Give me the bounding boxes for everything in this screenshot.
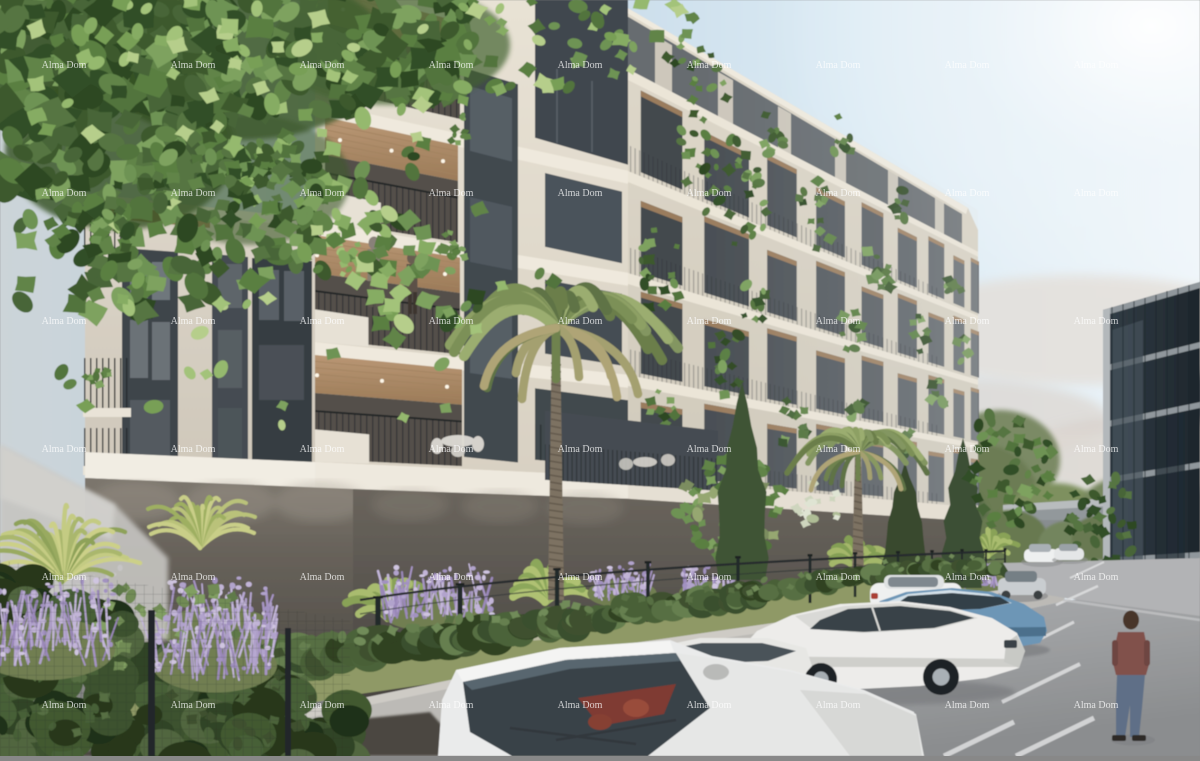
svg-text:Alma Dom: Alma Dom (945, 444, 990, 455)
svg-text:Alma Dom: Alma Dom (1074, 188, 1119, 199)
svg-text:Alma Dom: Alma Dom (558, 316, 603, 327)
svg-text:Alma Dom: Alma Dom (945, 572, 990, 583)
svg-text:Alma Dom: Alma Dom (816, 444, 861, 455)
svg-text:Alma Dom: Alma Dom (816, 700, 861, 711)
svg-text:Alma Dom: Alma Dom (300, 188, 345, 199)
svg-text:Alma Dom: Alma Dom (300, 60, 345, 71)
svg-text:Alma Dom: Alma Dom (171, 700, 216, 711)
svg-text:Alma Dom: Alma Dom (171, 316, 216, 327)
svg-text:Alma Dom: Alma Dom (42, 572, 87, 583)
svg-text:Alma Dom: Alma Dom (687, 572, 732, 583)
svg-text:Alma Dom: Alma Dom (429, 444, 474, 455)
svg-text:Alma Dom: Alma Dom (945, 316, 990, 327)
svg-text:Alma Dom: Alma Dom (1074, 444, 1119, 455)
svg-text:Alma Dom: Alma Dom (171, 444, 216, 455)
svg-text:Alma Dom: Alma Dom (429, 700, 474, 711)
svg-text:Alma Dom: Alma Dom (687, 188, 732, 199)
svg-text:Alma Dom: Alma Dom (42, 60, 87, 71)
svg-text:Alma Dom: Alma Dom (300, 700, 345, 711)
svg-text:Alma Dom: Alma Dom (1074, 60, 1119, 71)
svg-text:Alma Dom: Alma Dom (42, 444, 87, 455)
svg-text:Alma Dom: Alma Dom (558, 572, 603, 583)
svg-text:Alma Dom: Alma Dom (687, 316, 732, 327)
svg-text:Alma Dom: Alma Dom (816, 316, 861, 327)
svg-text:Alma Dom: Alma Dom (816, 188, 861, 199)
svg-text:Alma Dom: Alma Dom (687, 700, 732, 711)
svg-text:Alma Dom: Alma Dom (945, 700, 990, 711)
svg-text:Alma Dom: Alma Dom (558, 444, 603, 455)
svg-text:Alma Dom: Alma Dom (300, 444, 345, 455)
svg-text:Alma Dom: Alma Dom (687, 444, 732, 455)
svg-text:Alma Dom: Alma Dom (558, 188, 603, 199)
svg-text:Alma Dom: Alma Dom (816, 572, 861, 583)
svg-text:Alma Dom: Alma Dom (1074, 572, 1119, 583)
svg-text:Alma Dom: Alma Dom (300, 316, 345, 327)
svg-text:Alma Dom: Alma Dom (429, 316, 474, 327)
svg-text:Alma Dom: Alma Dom (429, 572, 474, 583)
svg-text:Alma Dom: Alma Dom (1074, 316, 1119, 327)
svg-text:Alma Dom: Alma Dom (558, 60, 603, 71)
svg-text:Alma Dom: Alma Dom (171, 188, 216, 199)
svg-text:Alma Dom: Alma Dom (816, 60, 861, 71)
svg-text:Alma Dom: Alma Dom (171, 572, 216, 583)
svg-text:Alma Dom: Alma Dom (429, 60, 474, 71)
svg-text:Alma Dom: Alma Dom (42, 700, 87, 711)
svg-text:Alma Dom: Alma Dom (558, 700, 603, 711)
svg-text:Alma Dom: Alma Dom (300, 572, 345, 583)
svg-text:Alma Dom: Alma Dom (945, 60, 990, 71)
svg-text:Alma Dom: Alma Dom (42, 188, 87, 199)
svg-text:Alma Dom: Alma Dom (429, 188, 474, 199)
svg-text:Alma Dom: Alma Dom (687, 60, 732, 71)
svg-text:Alma Dom: Alma Dom (42, 316, 87, 327)
svg-text:Alma Dom: Alma Dom (1074, 700, 1119, 711)
svg-text:Alma Dom: Alma Dom (945, 188, 990, 199)
svg-text:Alma Dom: Alma Dom (171, 60, 216, 71)
